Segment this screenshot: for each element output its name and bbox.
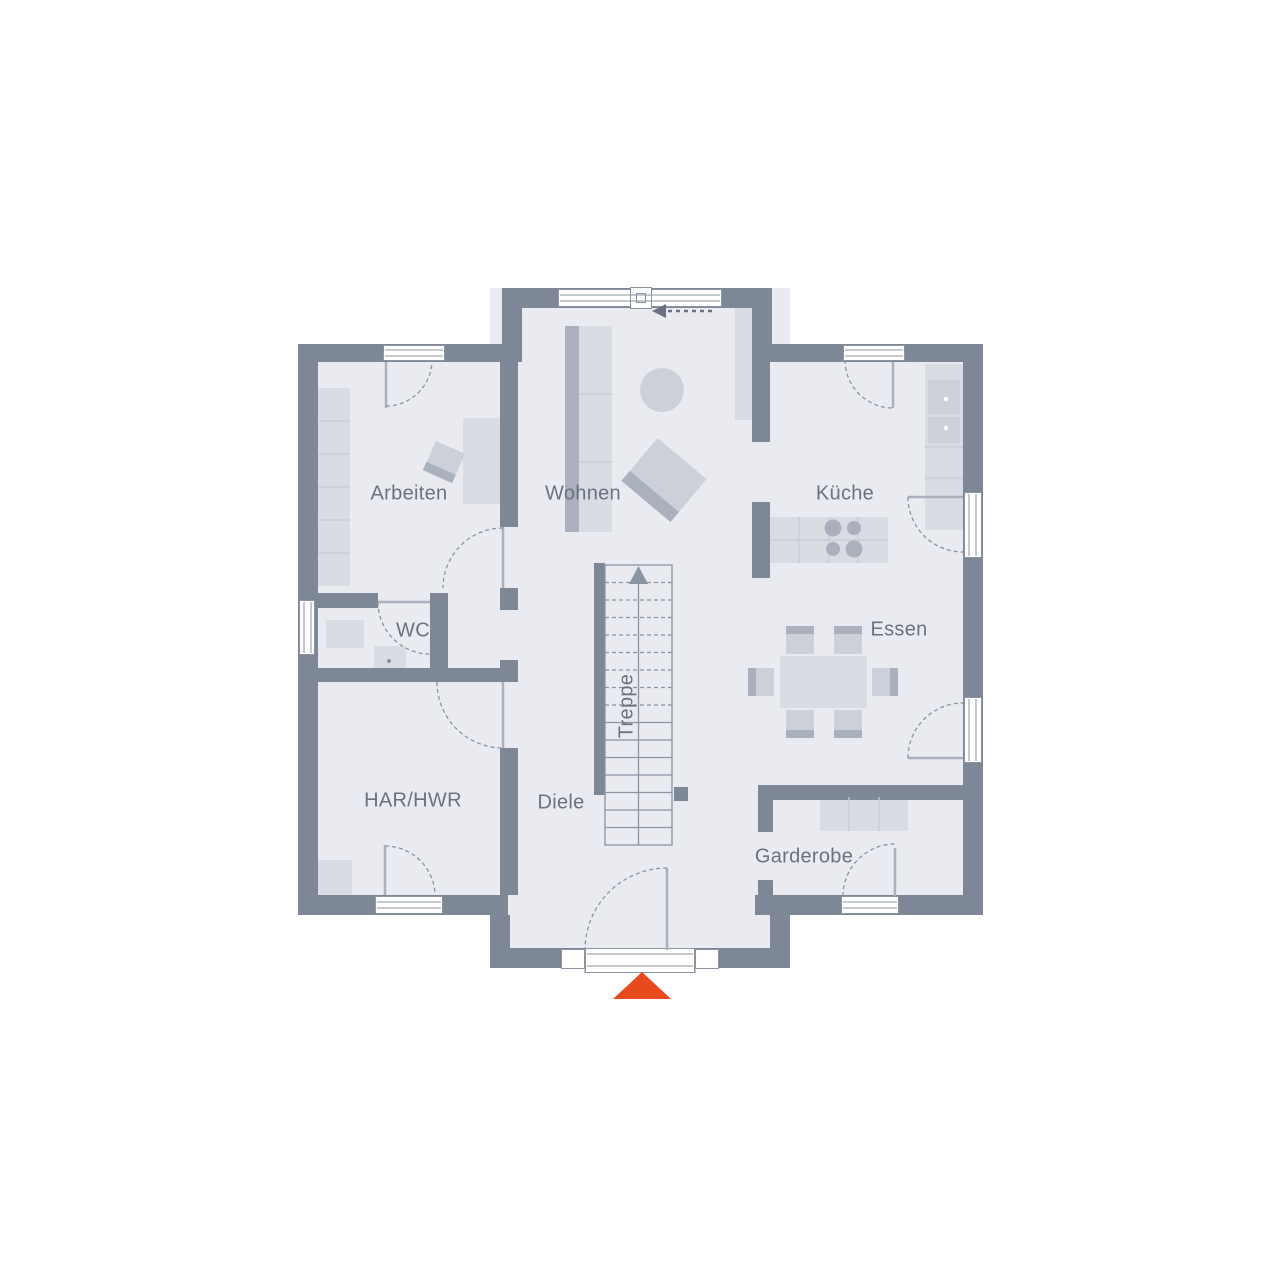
hob-burner — [847, 521, 861, 535]
stair-up-arrow-icon — [629, 566, 648, 584]
appliance-dot — [944, 426, 948, 430]
door-swing-hwr — [437, 682, 503, 748]
door-swing-hwr-exterior — [385, 846, 435, 896]
room-label-har-hwr: HAR/HWR — [364, 790, 462, 813]
door-swing-front — [585, 868, 667, 950]
entrance-marker-icon — [613, 972, 671, 999]
room-label-wc: WC — [396, 620, 430, 643]
room-label-essen: Essen — [870, 619, 927, 642]
door-swing-terrace-lower — [908, 703, 963, 758]
hob-burner — [825, 520, 842, 537]
toilet-dot — [387, 659, 391, 663]
appliance-dot — [944, 397, 948, 401]
door-swing-arbeiten — [443, 528, 503, 588]
door-swing-window-arbeiten — [386, 360, 432, 406]
door-swing-terrace-upper — [908, 497, 963, 552]
hob-burner — [846, 541, 863, 558]
plan-linework — [0, 0, 1280, 1280]
room-label-treppe: Treppe — [616, 674, 639, 738]
hob-burner — [826, 542, 840, 556]
slide-direction-arrow-icon — [652, 304, 712, 318]
room-label-arbeiten: Arbeiten — [371, 483, 448, 506]
room-label-wohnen: Wohnen — [545, 483, 621, 506]
floor-plan-canvas: Arbeiten Wohnen Küche WC Essen Treppe HA… — [0, 0, 1280, 1280]
room-label-garderobe: Garderobe — [755, 846, 853, 869]
door-swing-window-kueche — [845, 360, 893, 408]
room-label-kueche: Küche — [816, 483, 874, 506]
room-label-diele: Diele — [537, 792, 584, 815]
